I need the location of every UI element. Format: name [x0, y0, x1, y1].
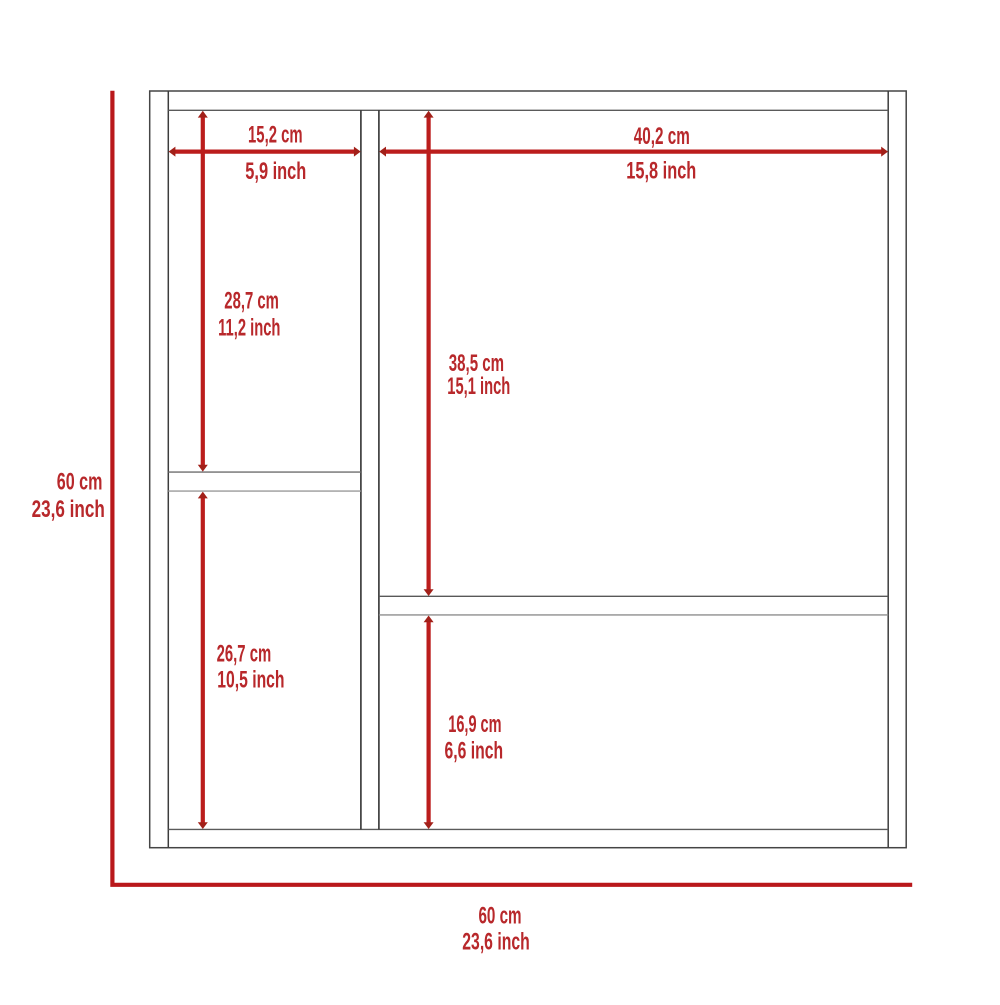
svg-text:16,9 cm: 16,9 cm [448, 711, 501, 738]
svg-text:15,1 inch: 15,1 inch [447, 373, 510, 400]
svg-text:26,7 cm: 26,7 cm [217, 640, 272, 667]
svg-text:40,2 cm: 40,2 cm [634, 123, 690, 150]
svg-text:28,7 cm: 28,7 cm [224, 288, 279, 315]
svg-text:10,5 inch: 10,5 inch [217, 666, 284, 693]
svg-text:5,9 inch: 5,9 inch [245, 158, 306, 185]
svg-text:23,6 inch: 23,6 inch [32, 496, 105, 523]
svg-text:60 cm: 60 cm [478, 902, 521, 929]
svg-text:15,8 inch: 15,8 inch [626, 158, 696, 185]
svg-text:6,6 inch: 6,6 inch [445, 737, 504, 764]
svg-text:15,2 cm: 15,2 cm [248, 122, 303, 149]
svg-text:11,2 inch: 11,2 inch [218, 314, 280, 341]
svg-text:23,6 inch: 23,6 inch [462, 929, 529, 956]
svg-text:60 cm: 60 cm [57, 468, 103, 495]
